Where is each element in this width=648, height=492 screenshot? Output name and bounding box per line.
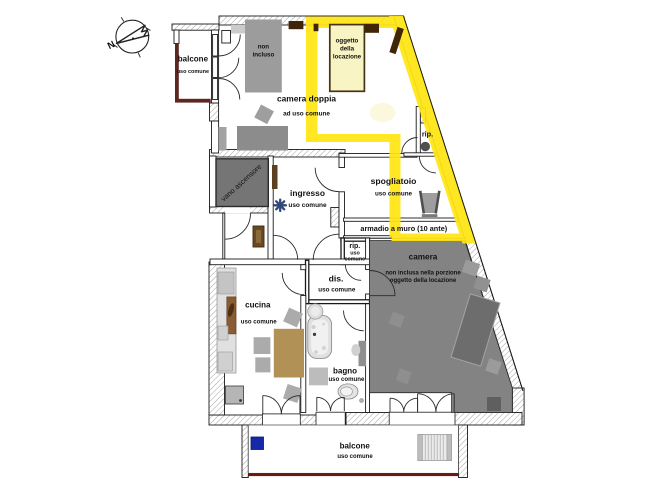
svg-text:armadio a muro (10 ante): armadio a muro (10 ante) — [360, 224, 447, 233]
svg-text:locazione: locazione — [333, 54, 362, 61]
svg-text:ingresso: ingresso — [290, 188, 325, 198]
svg-text:rip.: rip. — [422, 130, 433, 139]
svg-text:della: della — [340, 46, 355, 53]
svg-text:balcone: balcone — [178, 55, 209, 64]
svg-text:oggetto della locazione: oggetto della locazione — [390, 278, 457, 284]
svg-text:camera doppia: camera doppia — [277, 94, 336, 104]
svg-text:rip.: rip. — [349, 243, 360, 250]
svg-text:uso comune: uso comune — [288, 202, 327, 209]
svg-text:uso comune: uso comune — [177, 69, 209, 75]
svg-text:balcone: balcone — [340, 441, 371, 450]
svg-text:camera: camera — [409, 253, 438, 262]
svg-text:non inclusa nella porzione: non inclusa nella porzione — [385, 271, 461, 277]
svg-text:oggetto: oggetto — [336, 38, 359, 45]
svg-text:incluso: incluso — [253, 52, 275, 59]
svg-text:ad uso comune: ad uso comune — [283, 111, 330, 118]
svg-text:uso comune: uso comune — [241, 318, 278, 325]
svg-text:dis.: dis. — [329, 273, 344, 283]
svg-text:bagno: bagno — [333, 367, 357, 376]
svg-text:uso comune: uso comune — [375, 191, 413, 198]
svg-text:spogliatoio: spogliatoio — [371, 176, 417, 186]
svg-text:uso comune: uso comune — [328, 376, 365, 383]
svg-text:cucina: cucina — [245, 301, 271, 310]
svg-text:comune: comune — [344, 257, 365, 263]
svg-text:non: non — [258, 44, 270, 51]
svg-text:uso comune: uso comune — [337, 454, 373, 460]
svg-text:uso comune: uso comune — [318, 286, 356, 293]
svg-text:uso: uso — [350, 251, 360, 257]
